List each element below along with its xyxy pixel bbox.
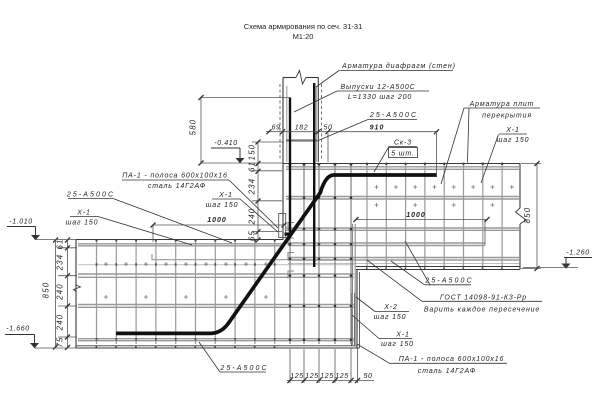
svg-text:М1:20: М1:20 — [293, 32, 314, 41]
svg-text:1000: 1000 — [406, 212, 426, 219]
svg-text:-0.410: -0.410 — [214, 140, 237, 147]
svg-text:ПА-1 - полоса 600х100х16: ПА-1 - полоса 600х100х16 — [122, 173, 228, 180]
svg-text:850: 850 — [42, 282, 51, 299]
svg-text:125: 125 — [335, 373, 348, 380]
svg-text:шаг 150: шаг 150 — [206, 202, 239, 209]
svg-text:ГОСТ 14098-91-К3-Рр: ГОСТ 14098-91-К3-Рр — [440, 294, 527, 301]
svg-text:Ск-3: Ск-3 — [394, 140, 412, 147]
svg-text:850: 850 — [523, 207, 532, 224]
svg-text:50: 50 — [364, 373, 373, 380]
svg-text:1000: 1000 — [207, 217, 227, 224]
svg-text:910: 910 — [370, 125, 385, 132]
svg-text:125: 125 — [320, 373, 333, 380]
svg-text:Х-1: Х-1 — [395, 332, 409, 339]
svg-text:Х-1: Х-1 — [505, 127, 519, 134]
svg-text:580: 580 — [189, 119, 198, 136]
svg-text:L=1330 шаг 200: L=1330 шаг 200 — [348, 94, 412, 101]
svg-text:61: 61 — [248, 161, 257, 172]
svg-text:25-А500С: 25-А500С — [66, 192, 115, 199]
svg-text:-1.010: -1.010 — [9, 219, 32, 226]
svg-text:ПА-1 - полоса 600х100х16: ПА-1 - полоса 600х100х16 — [399, 356, 505, 363]
svg-text:5 шт.: 5 шт. — [391, 151, 415, 158]
svg-text:Х-2: Х-2 — [383, 304, 397, 311]
svg-text:Х-1: Х-1 — [76, 210, 90, 217]
svg-text:перекрытия: перекрытия — [482, 113, 532, 120]
svg-text:234: 234 — [56, 254, 65, 272]
svg-text:Схема армирования по сеч. 31-3: Схема армирования по сеч. 31-31 — [244, 22, 363, 31]
svg-text:Х-1: Х-1 — [218, 192, 232, 199]
svg-text:-1.260: -1.260 — [566, 250, 589, 257]
svg-text:61: 61 — [56, 238, 65, 249]
svg-text:Арматура плит: Арматура плит — [469, 101, 535, 108]
svg-text:Варить каждое пересечение: Варить каждое пересечение — [424, 305, 540, 313]
svg-text:шаг 150: шаг 150 — [374, 314, 407, 321]
svg-text:сталь 14Г2АФ: сталь 14Г2АФ — [148, 183, 206, 190]
svg-text:шаг 150: шаг 150 — [66, 220, 99, 227]
svg-text:125: 125 — [290, 373, 303, 380]
svg-text:25-А500С: 25-А500С — [424, 277, 473, 284]
svg-text:-1.660: -1.660 — [6, 326, 29, 333]
svg-text:шаг 150: шаг 150 — [497, 137, 530, 144]
svg-text:234: 234 — [248, 178, 257, 196]
svg-text:240: 240 — [56, 283, 65, 301]
svg-text:125: 125 — [305, 373, 318, 380]
svg-text:Арматура диафрагм (стен): Арматура диафрагм (стен) — [341, 62, 456, 70]
svg-text:182: 182 — [295, 125, 308, 132]
svg-text:240: 240 — [248, 208, 257, 226]
svg-text:150: 150 — [248, 144, 257, 161]
svg-text:шаг 150: шаг 150 — [381, 341, 414, 348]
svg-text:сталь 14Г2АФ: сталь 14Г2АФ — [418, 368, 476, 375]
svg-text:240: 240 — [56, 314, 65, 332]
svg-text:50: 50 — [324, 125, 333, 132]
svg-text:25-А500С: 25-А500С — [219, 365, 268, 372]
svg-text:65: 65 — [248, 230, 257, 241]
svg-text:25-А500С: 25-А500С — [369, 112, 418, 119]
svg-text:Выпуски 12-А500С: Выпуски 12-А500С — [341, 84, 416, 91]
svg-text:69: 69 — [272, 125, 281, 132]
